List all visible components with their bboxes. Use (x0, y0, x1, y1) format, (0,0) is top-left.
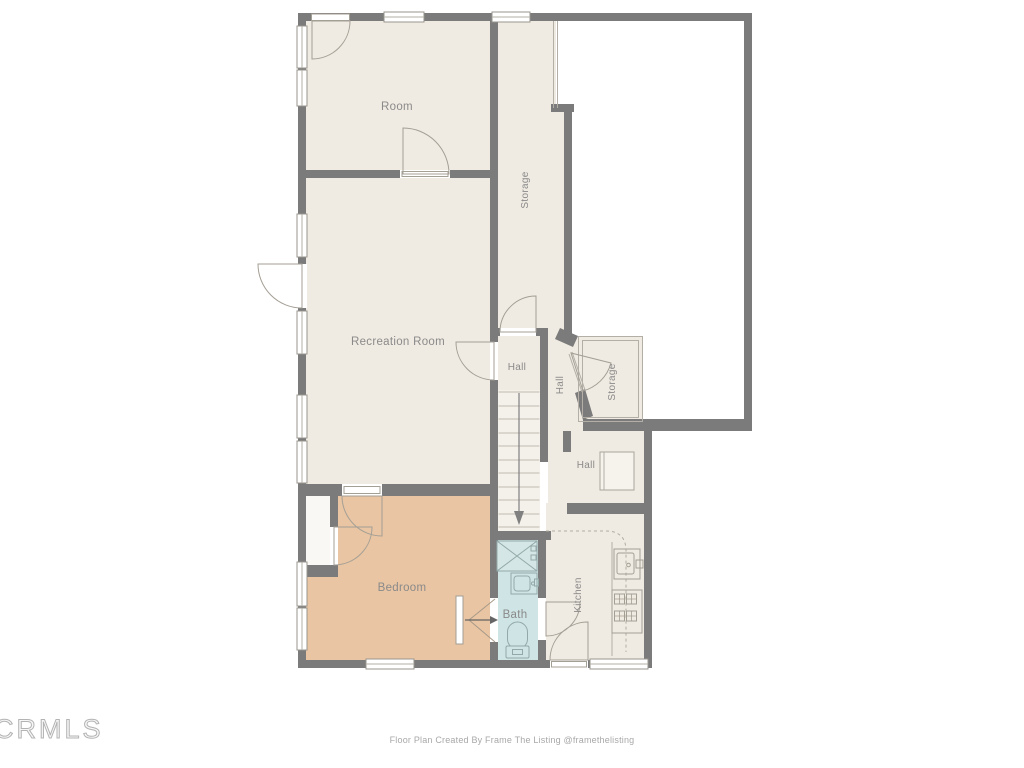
door-opening (312, 14, 350, 21)
room-label-storage-small: Storage (607, 363, 618, 400)
door-opening (538, 598, 546, 640)
room-label-room: Room (381, 101, 413, 113)
room-label-hall-mid: Hall (555, 376, 566, 394)
room-fill-closet (306, 496, 330, 565)
room-label-bath: Bath (503, 609, 528, 621)
room-label-recreation-room: Recreation Room (351, 336, 445, 348)
door-opening (344, 487, 380, 494)
hall-closet (600, 452, 634, 490)
footer-credit: Floor Plan Created By Frame The Listing … (0, 735, 1024, 745)
room-label-bedroom: Bedroom (378, 582, 427, 594)
room-fill-kitchen (546, 503, 644, 660)
room-label-hall-upper: Hall (508, 362, 526, 373)
room-label-hall-lower: Hall (577, 460, 595, 471)
door-opening (552, 662, 587, 668)
door-arc (258, 264, 302, 308)
room-label-kitchen: Kitchen (573, 577, 584, 612)
room-label-storage-corridor: Storage (520, 171, 531, 208)
room-fill-room (306, 21, 490, 170)
floor-plan-drawing: Room Storage Recreation Room Hall Hall S… (0, 0, 1024, 768)
room-fill-storage-corridor-top (498, 21, 556, 108)
room-fill-storage-corridor (498, 108, 564, 336)
floor-plan-page: Room Storage Recreation Room Hall Hall S… (0, 0, 1024, 768)
room-fill-recreation (306, 178, 490, 484)
toilet (508, 622, 528, 649)
